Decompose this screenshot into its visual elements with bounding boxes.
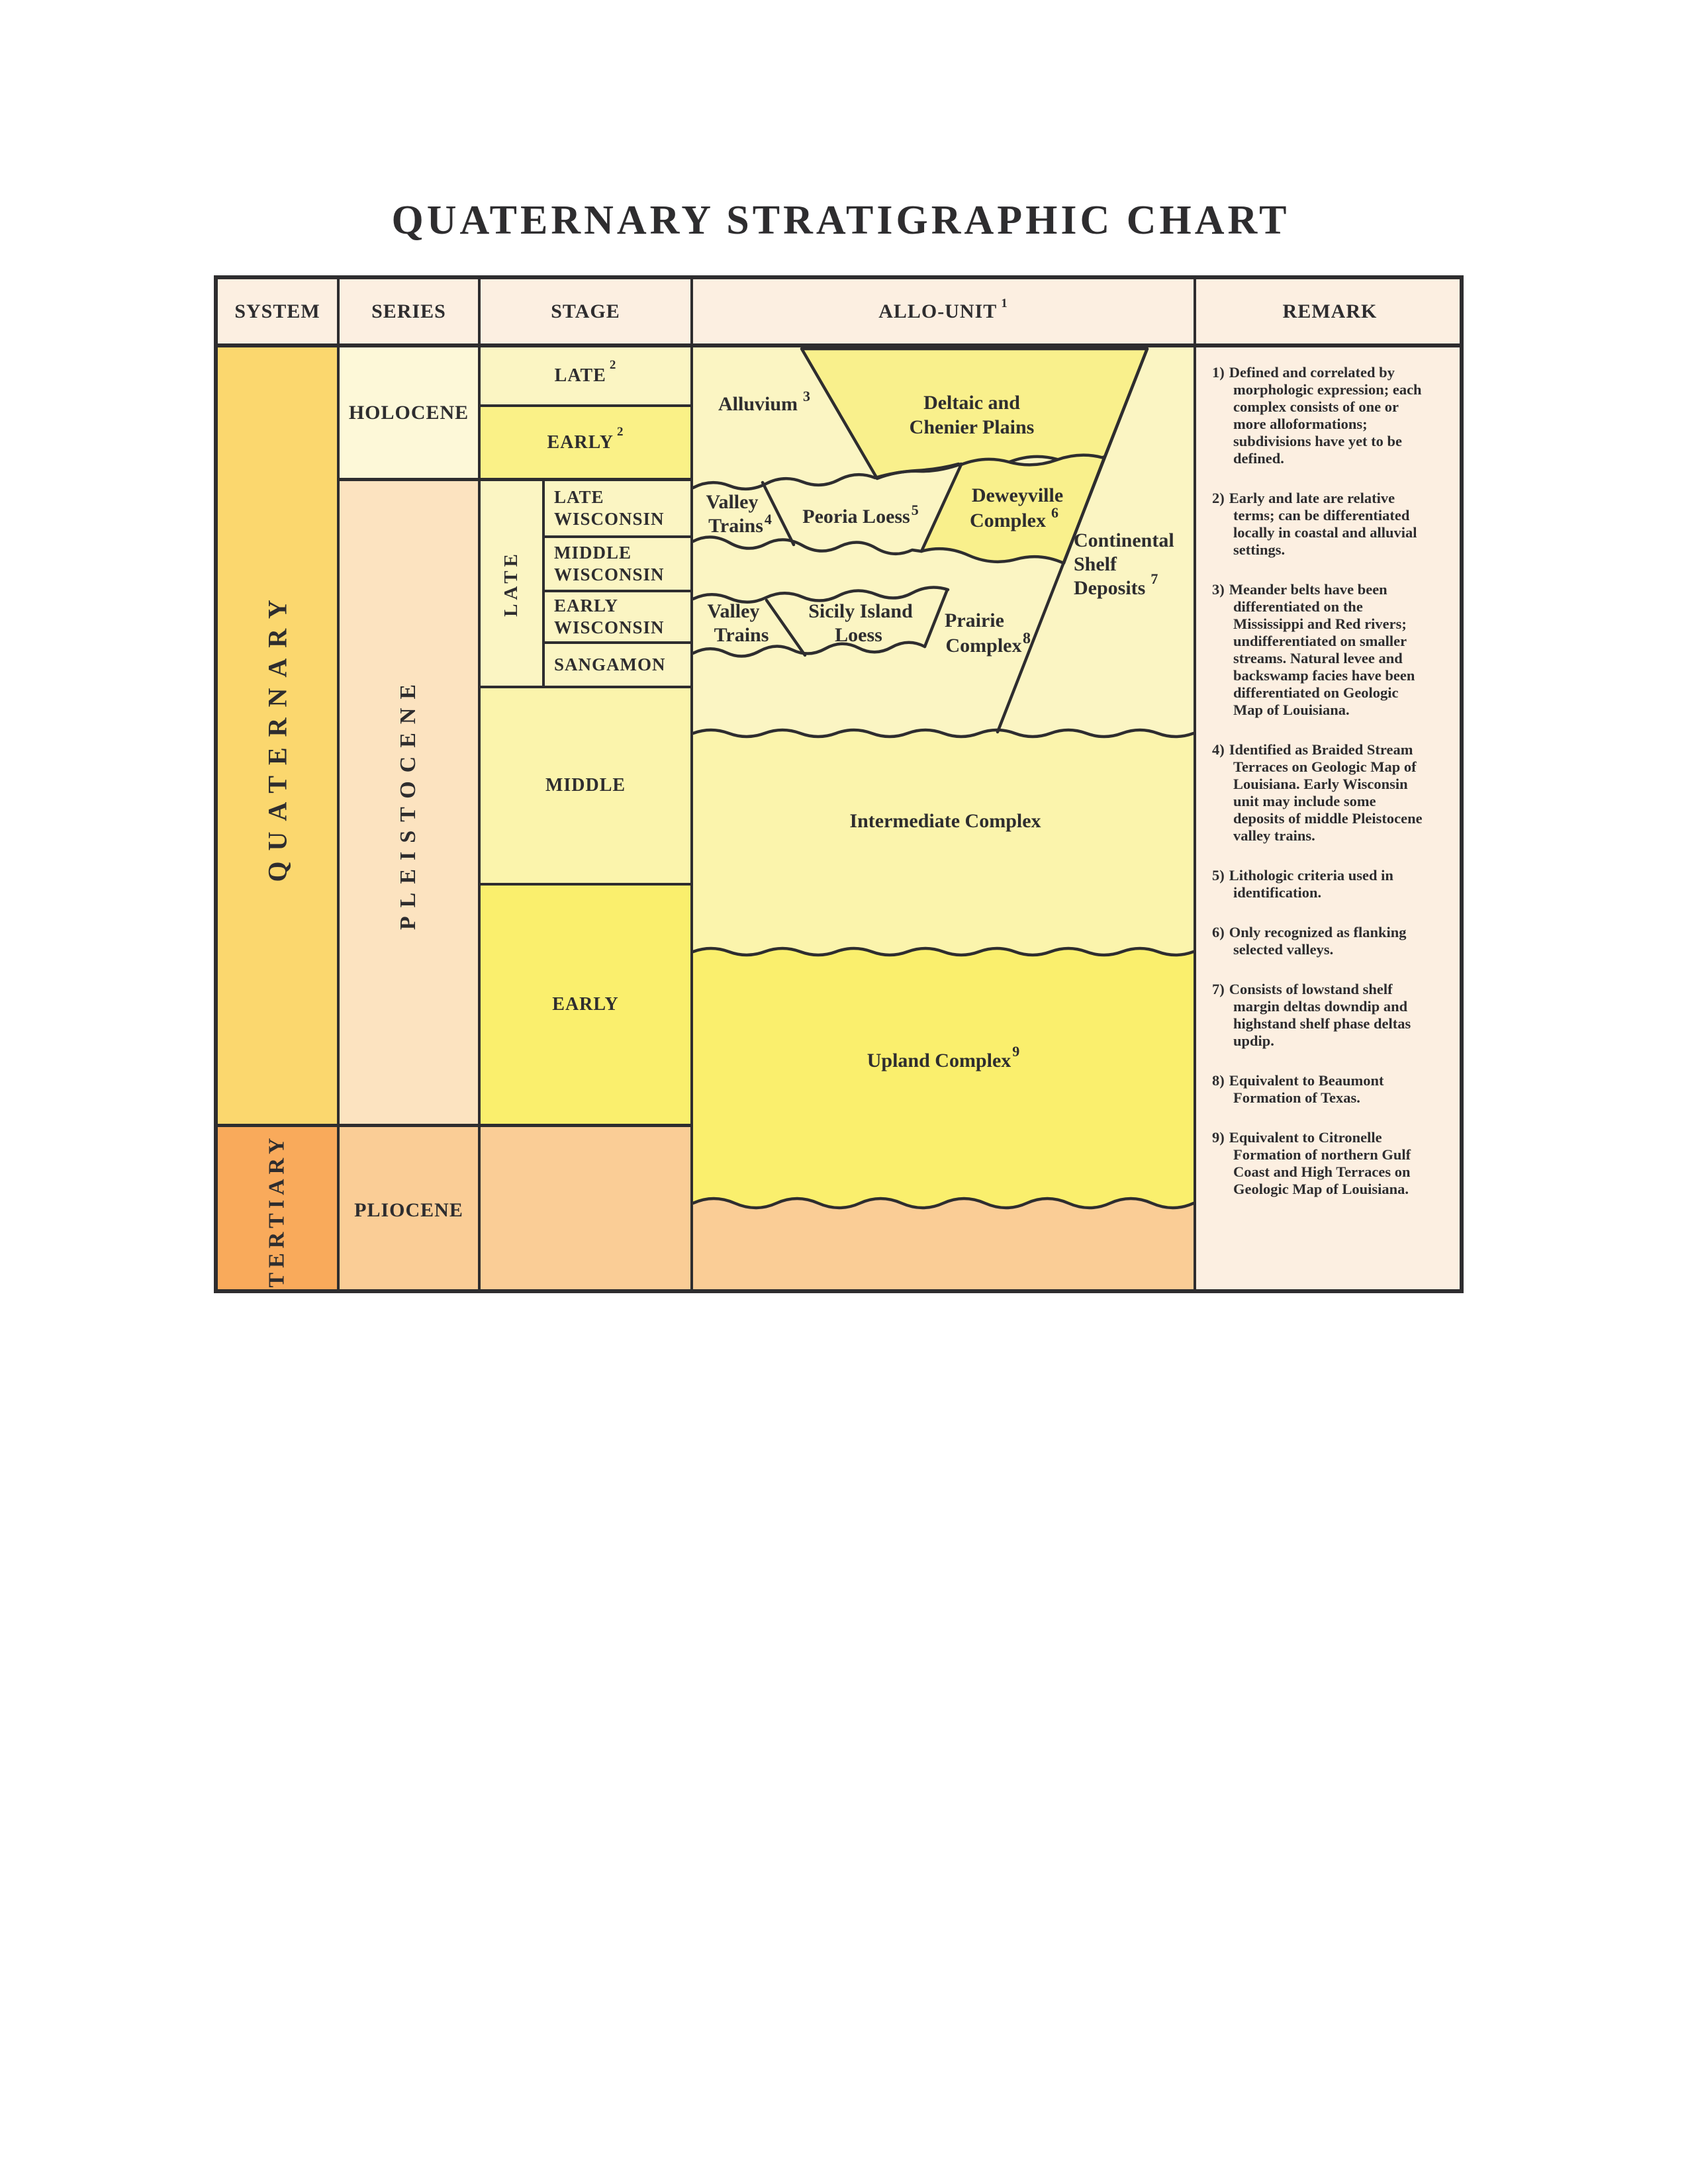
remark-5-text: Lithologic criteria used in identificati… [1229,867,1393,901]
remark-4-number: 4) [1212,741,1225,758]
stage-sangamon-cell: SANGAMON [545,644,693,688]
remark-list: 1)Defined and correlated by morphologic … [1212,364,1430,1220]
deweyville-label-line1: Deweyville [972,484,1063,506]
stage-early-pleistocene-label: EARLY [552,994,618,1015]
stage-late-wisconsin-cell: LATE WISCONSIN [545,481,693,538]
series-pleistocene-cell: PLEISTOCENE [340,481,481,1124]
stage-late-group-label: LATE [500,550,522,617]
remark-item-3: 3)Meander belts have been differentiated… [1212,581,1430,719]
stage-early-wisconsin-label: EARLY WISCONSIN [554,595,690,639]
system-quaternary-cell: QUATERNARY [218,347,340,1124]
prairie-sup-number: 8 [1023,630,1031,647]
remark-item-7: 7)Consists of lowstand shelf margin delt… [1212,981,1430,1050]
stage-middle-pleistocene-cell: MIDDLE [481,688,693,886]
remark-item-8: 8)Equivalent to Beaumont Formation of Te… [1212,1072,1430,1107]
stage-late-holocene-cell: LATE2 [481,347,693,407]
remark-2-number: 2) [1212,490,1225,506]
remark-5-number: 5) [1212,867,1225,884]
deltaic-label-line2: Chenier Plains [910,416,1035,438]
series-holocene-label: HOLOCENE [349,402,469,424]
prairie-label-line2: Complex [946,635,1022,657]
stage-early-wisconsin-cell: EARLY WISCONSIN [545,592,693,644]
chart-page: QUATERNARY STRATIGRAPHIC CHART SYSTEM SE… [0,0,1688,2184]
series-pliocene-cell: PLIOCENE [340,1124,481,1293]
remark-9-number: 9) [1212,1129,1225,1146]
valley-trains1-label-line2: Trains4 [708,511,772,537]
remark-item-5: 5)Lithologic criteria used in identifica… [1212,867,1430,901]
intermediate-complex-band [693,730,1194,955]
remark-item-9: 9)Equivalent to Citronelle Formation of … [1212,1129,1430,1198]
header-allo-unit-cell: ALLO-UNIT1 [693,279,1194,347]
series-pleistocene-label: PLEISTOCENE [397,675,422,929]
header-allo-unit-text: ALLO-UNIT [878,300,997,323]
stage-late-label: LATE [555,365,606,387]
header-remark-text: REMARK [1283,300,1378,323]
remark-item-1: 1)Defined and correlated by morphologic … [1212,364,1430,467]
series-holocene-cell: HOLOCENE [340,347,481,481]
prairie-label-line1: Prairie [945,610,1004,631]
header-series-text: SERIES [371,300,446,323]
series-pliocene-label: PLIOCENE [354,1199,463,1222]
remark-1-text: Defined and correlated by morphologic ex… [1229,364,1422,467]
valley-trains2-label-line2: Trains [714,624,769,646]
allo-unit-diagram: Alluvium3 Deltaic and Chenier Plains Val… [693,347,1194,1293]
stage-early-pleistocene-cell: EARLY [481,886,693,1124]
stage-sangamon-label: SANGAMON [554,654,666,676]
system-tertiary-cell: TERTIARY [218,1124,340,1293]
continental-shelf-label-line2: Shelf [1074,553,1117,575]
stage-early-holocene-cell: EARLY2 [481,407,693,481]
remark-8-text: Equivalent to Beaumont Formation of Texa… [1229,1072,1384,1106]
stage-middle-wisconsin-label: MIDDLE WISCONSIN [554,542,690,586]
stage-pliocene-empty-cell [481,1124,693,1293]
header-allo-unit-sup: 1 [1001,296,1008,311]
remark-8-number: 8) [1212,1072,1225,1089]
upland-complex-band [693,948,1194,1208]
remark-2-text: Early and late are relative terms; can b… [1229,490,1417,558]
intermediate-complex-label: Intermediate Complex [849,810,1041,832]
sicily-island-label-line1: Sicily Island [808,600,913,622]
remark-1-number: 1) [1212,364,1225,381]
system-quaternary-label: QUATERNARY [262,589,293,882]
stage-middle-wisconsin-cell: MIDDLE WISCONSIN [545,538,693,592]
stage-middle-label: MIDDLE [545,775,626,796]
remark-7-number: 7) [1212,981,1225,997]
remark-item-4: 4)Identified as Braided Stream Terraces … [1212,741,1430,844]
stage-late-sup: 2 [610,358,617,373]
remark-6-text: Only recognized as flanking selected val… [1229,924,1407,958]
system-tertiary-label: TERTIARY [265,1133,290,1287]
sicily-island-label-line2: Loess [835,624,882,646]
remark-6-number: 6) [1212,924,1225,940]
header-stage-text: STAGE [551,300,620,323]
remark-item-2: 2)Early and late are relative terms; can… [1212,490,1430,559]
remark-9-text: Equivalent to Citronelle Formation of no… [1229,1129,1411,1197]
peoria-loess-label: Peoria Loess5 [802,502,918,527]
header-stage-cell: STAGE [481,279,693,347]
remark-3-number: 3) [1212,581,1225,598]
stage-late-wisconsin-label: LATE WISCONSIN [554,486,690,530]
pliocene-allo-band [693,1199,1194,1292]
stage-late-group-cell: LATE [481,481,545,688]
stage-early-label: EARLY [547,432,614,453]
remark-3-text: Meander belts have been differentiated o… [1229,581,1415,718]
deltaic-label-line1: Deltaic and [923,392,1020,414]
valley-trains2-label-line1: Valley [708,600,760,622]
header-series-cell: SERIES [340,279,481,347]
stage-early-sup: 2 [617,425,624,439]
remark-4-text: Identified as Braided Stream Terraces on… [1229,741,1423,844]
continental-shelf-label-line1: Continental [1074,529,1174,551]
remark-item-6: 6)Only recognized as flanking selected v… [1212,924,1430,958]
valley-trains1-label-line1: Valley [706,491,759,513]
remark-7-text: Consists of lowstand shelf margin deltas… [1229,981,1411,1049]
header-system-text: SYSTEM [234,300,320,323]
header-system-cell: SYSTEM [218,279,340,347]
page-title: QUATERNARY STRATIGRAPHIC CHART [217,197,1464,244]
header-remark-cell: REMARK [1194,279,1464,347]
